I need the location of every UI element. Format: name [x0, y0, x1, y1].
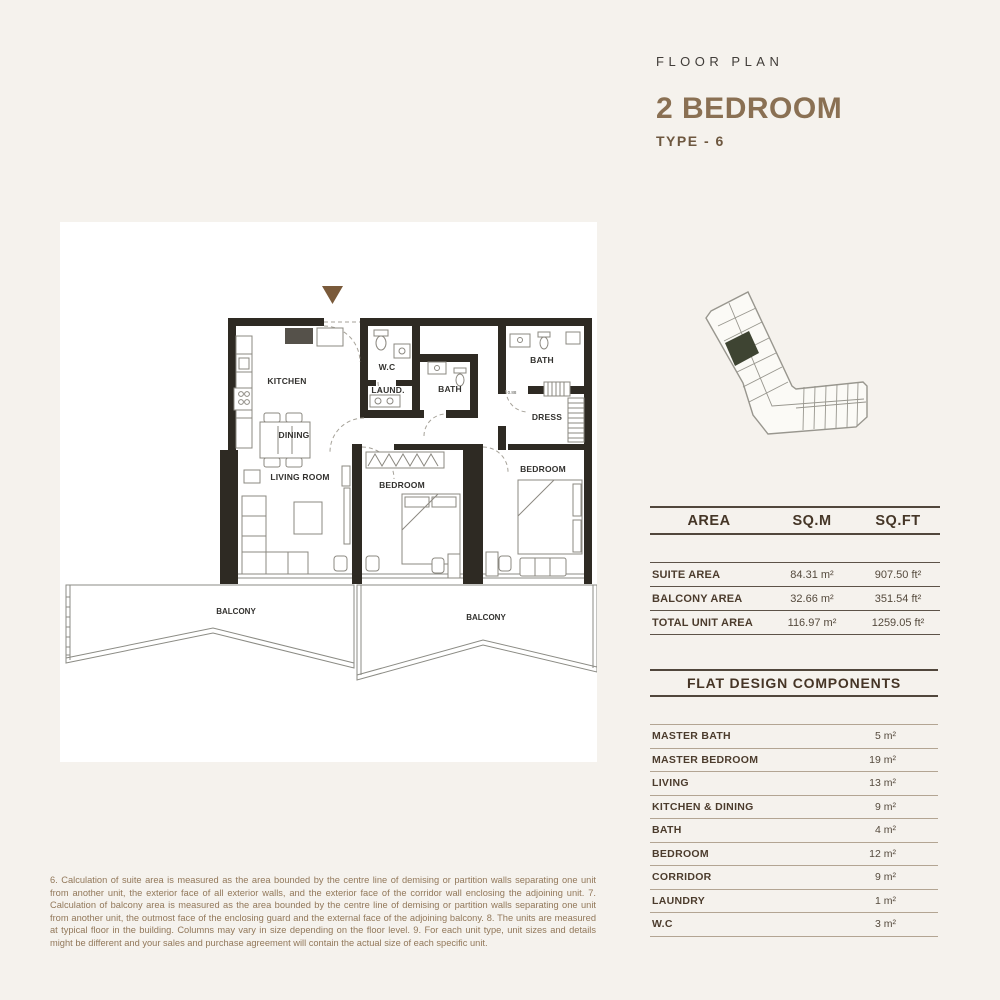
- table-row-balcony-area: BALCONY AREA 32.66 m² 351.54 ft²: [650, 587, 940, 611]
- components-table-title: FLAT DESIGN COMPONENTS: [650, 669, 938, 697]
- room-label-wc: W.C: [379, 362, 396, 372]
- table-row-laundry: LAUNDRY 1 m²: [650, 890, 938, 914]
- room-label-bath-1: BATH: [438, 384, 462, 394]
- area-table-header-sqft: SQ.FT: [856, 513, 940, 529]
- area-table-header: AREA SQ.M SQ.FT: [650, 506, 940, 535]
- balconies: [66, 585, 597, 680]
- table-row-kitchen-dining: KITCHEN & DINING 9 m²: [650, 796, 938, 820]
- area-table-header-sqm: SQ.M: [768, 513, 856, 529]
- room-label-living: LIVING ROOM: [270, 472, 329, 482]
- floor-plan-panel: KITCHEN DINING LIVING ROOM W.C LAUND. BA…: [60, 222, 597, 762]
- dimension-label: 0.88: [508, 390, 517, 395]
- area-table: AREA SQ.M SQ.FT SUITE AREA 84.31 m² 907.…: [650, 506, 940, 635]
- room-label-dining: DINING: [279, 430, 310, 440]
- flat-design-components-table: FLAT DESIGN COMPONENTS MASTER BATH 5 m² …: [650, 669, 938, 937]
- balcony-label-right: BALCONY: [466, 613, 506, 622]
- table-row-bedroom: BEDROOM 12 m²: [650, 843, 938, 867]
- room-label-kitchen: KITCHEN: [267, 376, 306, 386]
- area-table-header-area: AREA: [650, 513, 768, 529]
- room-label-bath-2: BATH: [530, 355, 554, 365]
- table-row-living: LIVING 13 m²: [650, 772, 938, 796]
- page-header: FLOOR PLAN 2 BEDROOM TYPE - 6: [656, 54, 842, 149]
- unit-type-label: TYPE - 6: [656, 133, 842, 149]
- table-row-corridor: CORRIDOR 9 m²: [650, 866, 938, 890]
- table-row-master-bedroom: MASTER BEDROOM 19 m²: [650, 749, 938, 773]
- balcony-label-left: BALCONY: [216, 607, 256, 616]
- table-row-total-unit-area: TOTAL UNIT AREA 116.97 m² 1259.05 ft²: [650, 611, 940, 635]
- table-row-master-bath: MASTER BATH 5 m²: [650, 725, 938, 749]
- room-label-bedroom-1: BEDROOM: [379, 480, 425, 490]
- furniture: [234, 328, 584, 578]
- room-label-bedroom-2: BEDROOM: [520, 464, 566, 474]
- table-row-suite-area: SUITE AREA 84.31 m² 907.50 ft²: [650, 563, 940, 587]
- key-plan-building-outline: [706, 292, 867, 434]
- room-label-dress: DRESS: [532, 412, 562, 422]
- entrance-arrow-icon: [322, 286, 343, 304]
- page-title: 2 BEDROOM: [656, 92, 842, 126]
- table-row-bath: BATH 4 m²: [650, 819, 938, 843]
- room-label-laundry: LAUND.: [371, 385, 404, 395]
- eyebrow-floor-plan: FLOOR PLAN: [656, 54, 842, 69]
- key-plan: [696, 286, 871, 446]
- table-row-wc: W.C 3 m²: [650, 913, 938, 937]
- legal-footnote: 6. Calculation of suite area is measured…: [50, 874, 596, 949]
- floor-plan-svg: KITCHEN DINING LIVING ROOM W.C LAUND. BA…: [60, 222, 597, 762]
- key-plan-svg: [696, 286, 871, 446]
